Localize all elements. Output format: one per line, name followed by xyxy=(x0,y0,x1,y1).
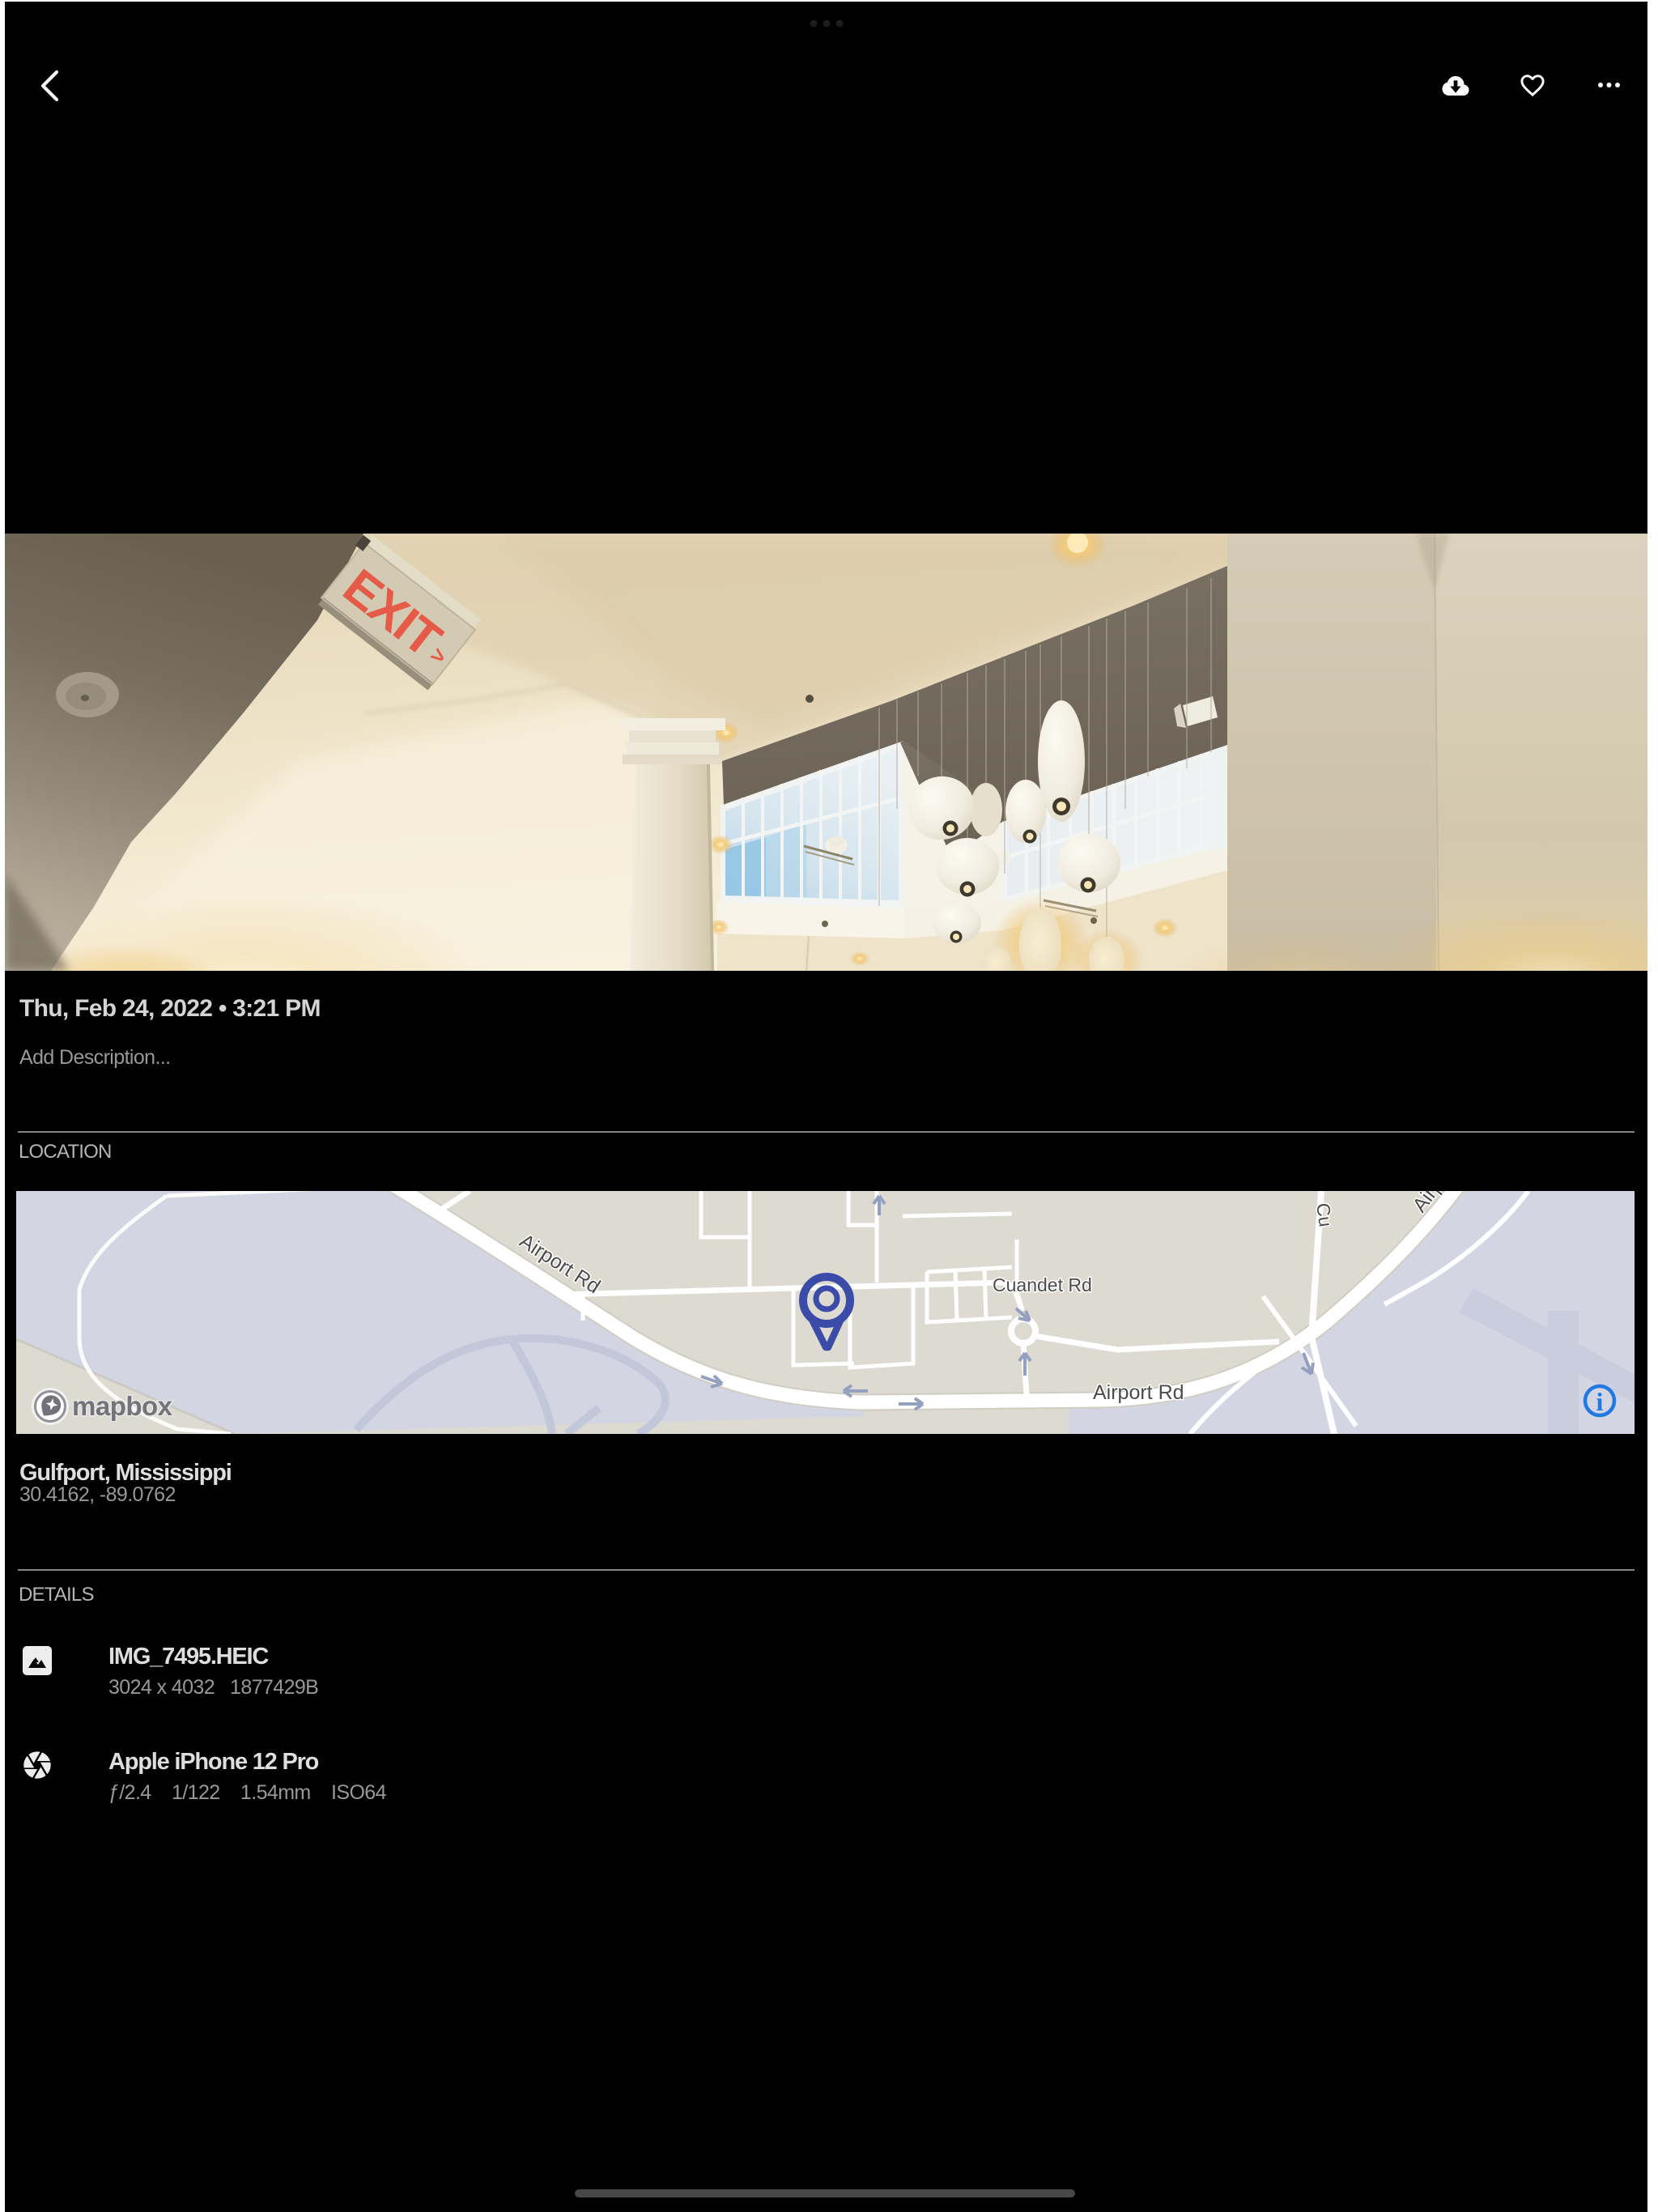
svg-text:mapbox: mapbox xyxy=(72,1391,173,1421)
svg-text:Airport Rd: Airport Rd xyxy=(1093,1381,1184,1404)
svg-text:Cu: Cu xyxy=(1312,1202,1337,1228)
svg-text:i: i xyxy=(1596,1387,1604,1416)
svg-text:Cuandet Rd: Cuandet Rd xyxy=(993,1274,1092,1295)
